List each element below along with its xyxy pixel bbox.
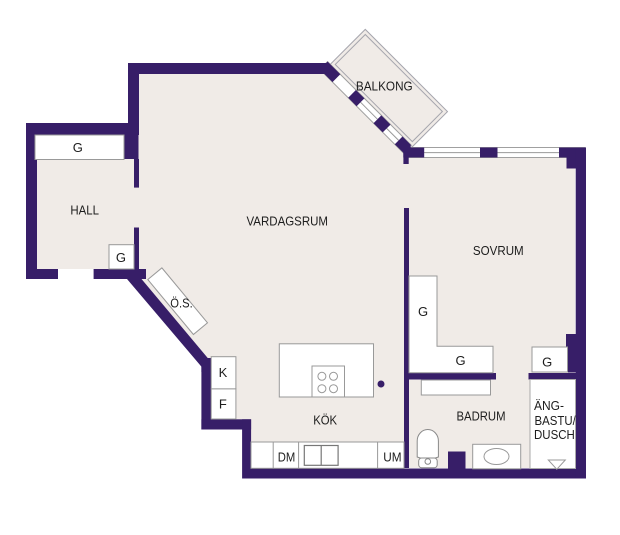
svg-text:HALL: HALL	[70, 202, 99, 217]
svg-text:KÖK: KÖK	[313, 413, 337, 428]
svg-text:G: G	[455, 353, 465, 368]
svg-text:G: G	[73, 140, 83, 155]
svg-text:Ö.S.: Ö.S.	[170, 296, 192, 311]
svg-text:F: F	[219, 396, 227, 411]
svg-text:K: K	[219, 365, 228, 380]
svg-text:UM: UM	[383, 449, 401, 464]
svg-text:BALKONG: BALKONG	[356, 78, 413, 93]
svg-text:ÄNG-: ÄNG-	[534, 398, 564, 413]
svg-text:G: G	[542, 355, 552, 370]
svg-text:DUSCH: DUSCH	[534, 427, 575, 442]
svg-text:BADRUM: BADRUM	[457, 409, 506, 424]
svg-text:SOVRUM: SOVRUM	[473, 243, 524, 258]
svg-text:G: G	[116, 250, 126, 265]
svg-text:VARDAGSRUM: VARDAGSRUM	[247, 213, 329, 228]
svg-text:DM: DM	[278, 449, 296, 464]
svg-text:BASTU/: BASTU/	[535, 413, 577, 428]
svg-text:G: G	[418, 304, 428, 319]
